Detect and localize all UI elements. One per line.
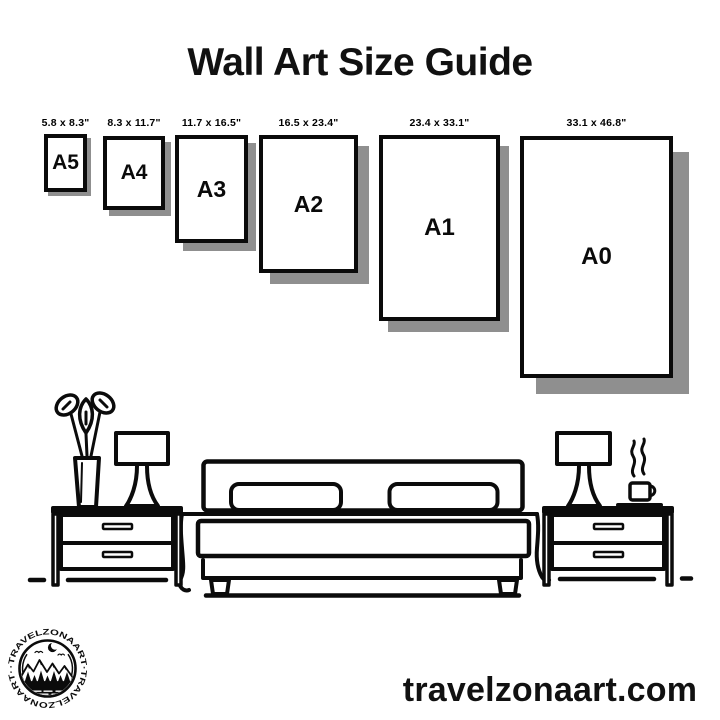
bed (180, 462, 549, 595)
dims-label-a2: 16.5 x 23.4" (244, 117, 373, 129)
lamp-left-base (126, 466, 158, 506)
nightstand-left (53, 508, 181, 585)
lamp-right-base (568, 466, 600, 506)
mattress (198, 521, 529, 556)
paper-size-a1: A1 (379, 135, 500, 321)
paper-letter-a3: A3 (197, 176, 226, 203)
paper-size-a0: A0 (520, 136, 673, 378)
nightstand-left-leg (53, 514, 58, 585)
nightstand-right (544, 508, 672, 585)
paper-size-a5: A5 (44, 134, 87, 192)
plant-vase (75, 458, 99, 507)
plant (52, 389, 117, 507)
paper-letter-a0: A0 (581, 243, 612, 271)
pillow-right (390, 484, 498, 510)
lamp-right-shade (557, 433, 610, 464)
paper-letter-a2: A2 (294, 191, 323, 218)
bed-leg-right (499, 580, 517, 594)
pillow-left (231, 484, 341, 510)
bed-base (203, 560, 521, 578)
brand-logo-badge: ·TRAVELZONAART·TRAVELZONAART· (5, 626, 90, 711)
paper-letter-a4: A4 (121, 161, 148, 185)
coffee-cup-icon (618, 439, 661, 505)
lamp-left (116, 433, 168, 506)
lamp-right (557, 433, 610, 506)
paper-size-a2: A2 (259, 135, 358, 273)
cup-body (630, 483, 650, 500)
wall-art-size-guide-infographic: Wall Art Size Guide 5.8 x 8.3" 8.3 x 11.… (0, 0, 720, 720)
nightstand-right-top (544, 508, 672, 512)
paper-size-a4: A4 (103, 136, 165, 210)
paper-letter-a5: A5 (52, 151, 79, 175)
nightstand-left-leg (176, 514, 181, 585)
website-url: travelzonaart.com (380, 671, 720, 710)
page-title: Wall Art Size Guide (0, 41, 720, 85)
lamp-left-shade (116, 433, 168, 464)
nightstand-right-leg (544, 514, 549, 585)
steam (642, 439, 645, 474)
paper-size-a3: A3 (175, 135, 248, 243)
dims-label-a0: 33.1 x 46.8" (505, 117, 688, 129)
bed-leg-left (211, 580, 229, 594)
nightstand-right-leg (667, 514, 672, 585)
steam (632, 441, 635, 476)
bedroom-illustration (0, 380, 720, 605)
nightstand-left-top (53, 508, 181, 512)
dims-label-a1: 23.4 x 33.1" (364, 117, 515, 129)
paper-letter-a1: A1 (424, 214, 455, 242)
floor-line (30, 579, 691, 596)
